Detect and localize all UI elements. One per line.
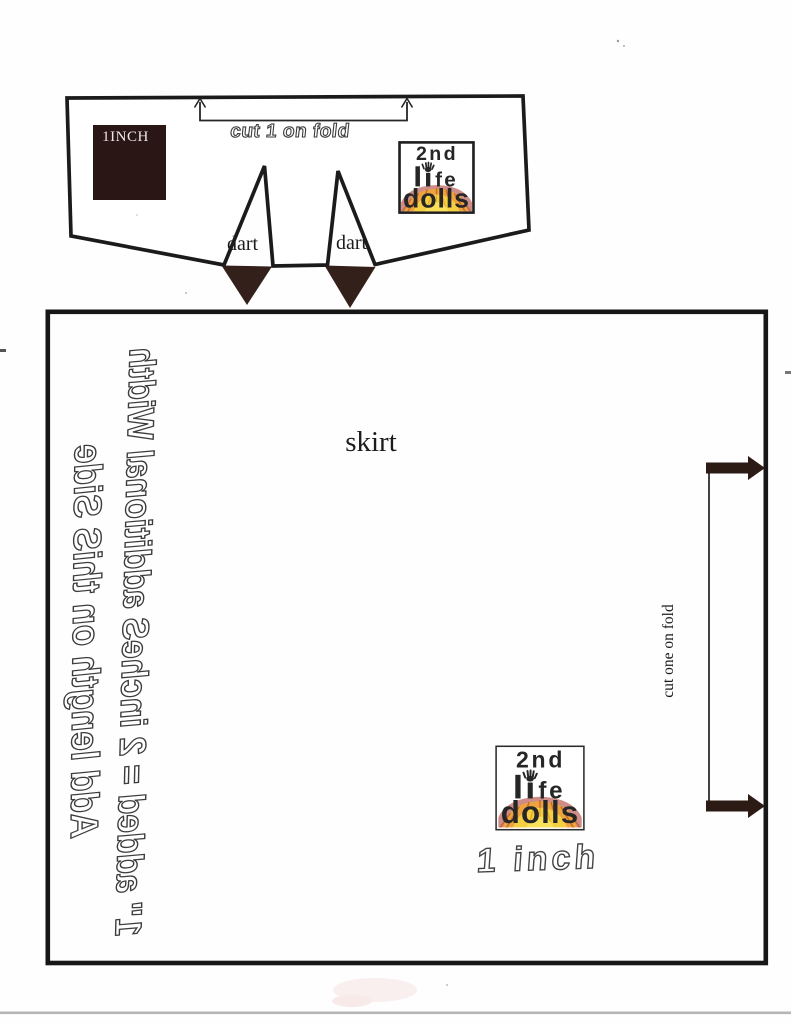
svg-text:2nd: 2nd xyxy=(416,143,458,165)
svg-text:dolls: dolls xyxy=(403,183,470,213)
